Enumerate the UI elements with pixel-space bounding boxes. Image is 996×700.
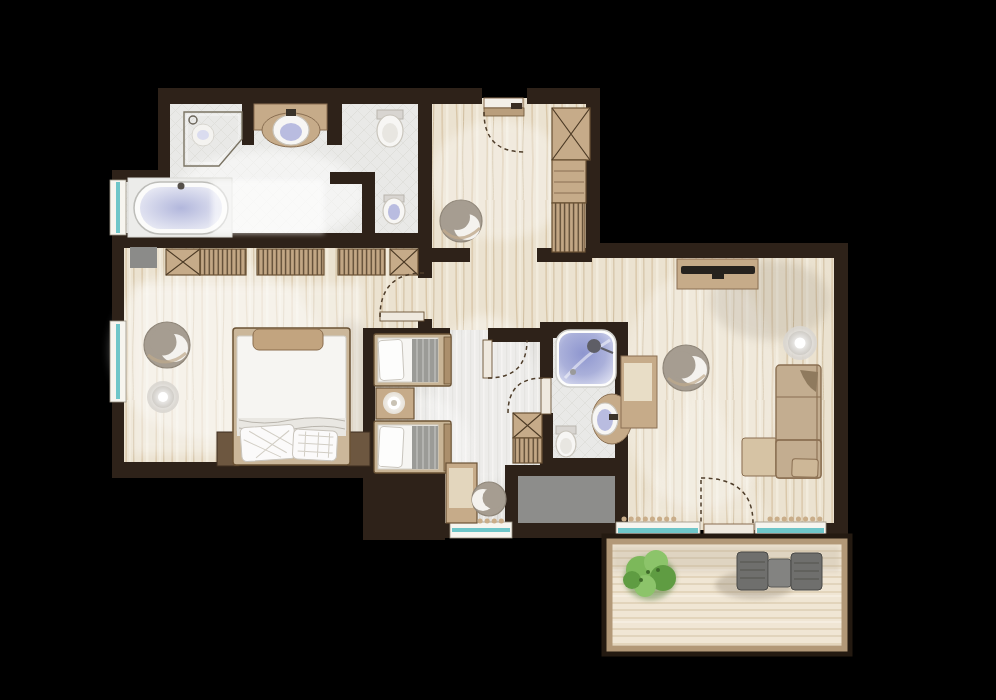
hall-armchair bbox=[440, 200, 482, 242]
corridor bbox=[513, 413, 542, 463]
twin-bed-1 bbox=[374, 334, 451, 386]
twin-bed-2 bbox=[374, 421, 451, 473]
floor-plan bbox=[0, 0, 996, 700]
bath-mat bbox=[212, 180, 324, 234]
tv-sideboard bbox=[677, 259, 758, 289]
faucet-icon bbox=[609, 414, 618, 420]
bidet bbox=[383, 195, 405, 224]
nightstand-right bbox=[348, 432, 370, 466]
window-bathtub bbox=[110, 180, 126, 235]
toilet bbox=[377, 110, 403, 147]
twin-nightstand bbox=[376, 388, 414, 419]
tv-icon bbox=[681, 266, 755, 274]
toilet-2 bbox=[556, 426, 576, 457]
shower-2 bbox=[556, 330, 616, 387]
corner-sofa bbox=[776, 365, 821, 478]
table-lamp-icon bbox=[391, 400, 397, 406]
double-bed bbox=[233, 328, 350, 465]
shaft bbox=[516, 474, 617, 525]
tub-faucet-icon bbox=[178, 183, 185, 190]
lounge-chair-1 bbox=[737, 552, 768, 590]
hall-closet bbox=[552, 108, 590, 252]
window-twin-room bbox=[450, 522, 512, 538]
desk-chair bbox=[472, 482, 506, 516]
bed-runner bbox=[412, 339, 438, 382]
pillow-left bbox=[240, 424, 296, 462]
closet-hanging-rail bbox=[552, 203, 585, 252]
shower-head-icon bbox=[587, 339, 601, 353]
corridor-wardrobe bbox=[513, 413, 542, 463]
balcony bbox=[604, 536, 850, 654]
faucet-icon bbox=[286, 109, 296, 116]
living-armchair bbox=[663, 345, 709, 391]
pillow-right bbox=[292, 429, 338, 461]
floor-plan-canvas bbox=[0, 0, 996, 700]
bedroom-armchair bbox=[144, 322, 190, 368]
window-bedroom bbox=[110, 321, 126, 402]
wardrobe-row bbox=[166, 249, 418, 275]
bed-foot-bench bbox=[253, 329, 323, 350]
living-desk bbox=[621, 356, 657, 428]
bedroom-floor-lamp bbox=[147, 381, 179, 413]
twin-desk bbox=[446, 463, 477, 523]
stool bbox=[130, 247, 157, 268]
living-floor-lamp bbox=[783, 326, 817, 360]
side-table bbox=[768, 559, 791, 587]
ottoman bbox=[742, 438, 778, 476]
door-handle-icon bbox=[511, 103, 522, 109]
